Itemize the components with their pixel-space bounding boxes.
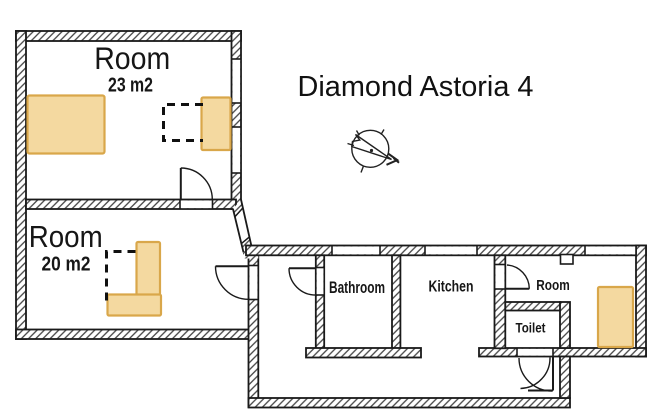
- svg-text:Room: Room: [536, 278, 570, 294]
- svg-text:Room: Room: [94, 40, 170, 76]
- svg-text:Toilet: Toilet: [516, 320, 546, 336]
- svg-text:20 m2: 20 m2: [42, 254, 91, 276]
- svg-text:Room: Room: [29, 219, 103, 254]
- svg-text:23 m2: 23 m2: [108, 75, 153, 97]
- svg-text:Bathroom: Bathroom: [329, 279, 385, 297]
- svg-text:Kitchen: Kitchen: [429, 279, 474, 296]
- svg-text:Diamond Astoria 4: Diamond Astoria 4: [298, 71, 534, 103]
